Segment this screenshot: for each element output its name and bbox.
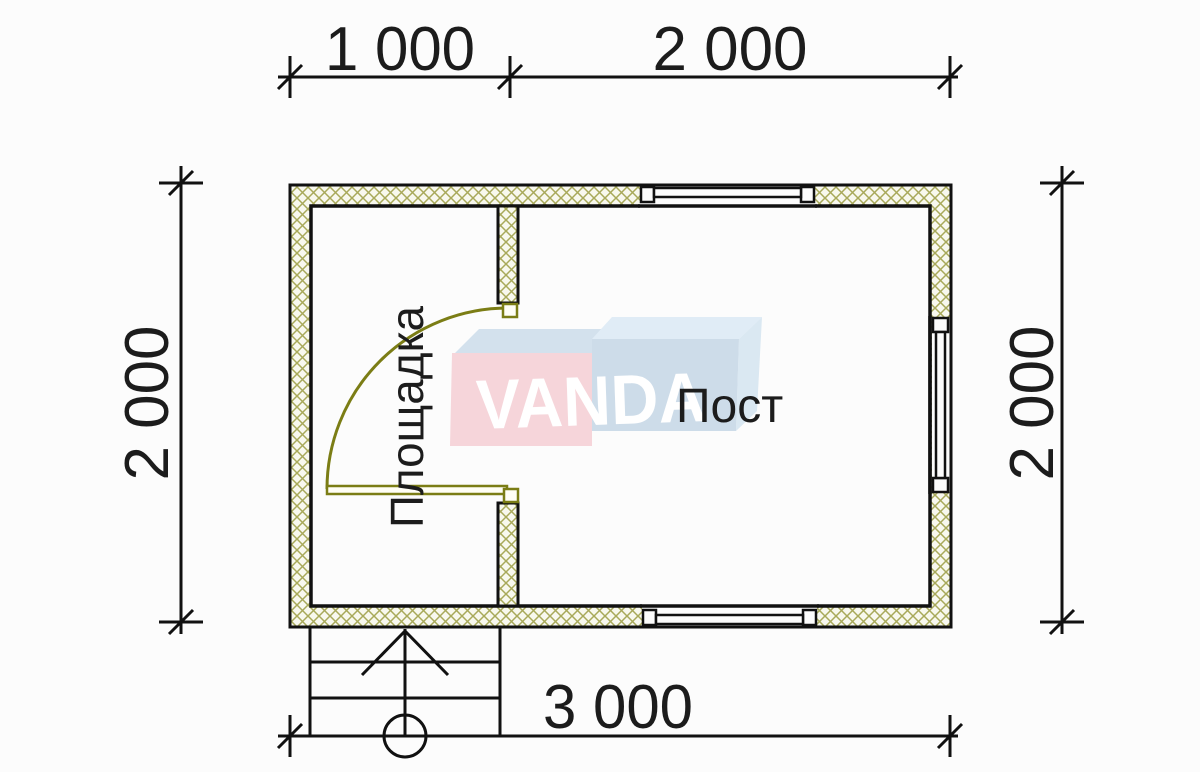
floor-plan-canvas: VANDA (0, 0, 1200, 772)
partition-upper-segment (498, 206, 518, 303)
window-top-sash (654, 188, 801, 197)
dim-label-top-left: 1 000 (325, 15, 475, 84)
watermark-text: VANDA (475, 358, 708, 444)
window-top-jamb-left (641, 187, 654, 202)
dim-label-right: 2 000 (998, 326, 1067, 481)
arrow-head-right (405, 631, 448, 675)
window-bottom-jamb-left (643, 610, 656, 625)
window-right-sash (936, 332, 945, 478)
floor-plan-page: VANDA (0, 0, 1200, 772)
dim-label-top-right: 2 000 (653, 15, 808, 84)
door-frame-block-top (503, 304, 517, 317)
window-bottom-jamb-right (803, 610, 816, 625)
window-right-jamb-top (933, 318, 948, 332)
window-bottom-sash (656, 615, 803, 624)
window-right (930, 316, 951, 494)
window-right-jamb-bottom (933, 478, 948, 492)
logo-top-face-right (592, 317, 762, 339)
door-frame-block-bottom (504, 489, 518, 502)
stairs-direction-arrow (362, 629, 448, 757)
window-top-jamb-right (801, 187, 814, 202)
dim-label-bottom: 3 000 (543, 673, 693, 742)
arrow-head-left (362, 631, 405, 675)
window-top (638, 183, 817, 208)
room-label-left: Площадка (381, 306, 433, 528)
window-bottom (640, 604, 819, 629)
partition-lower-segment (498, 503, 518, 606)
dim-label-left: 2 000 (113, 326, 182, 481)
room-label-right: Пост (676, 380, 783, 433)
logo-top-face-left (455, 329, 611, 353)
